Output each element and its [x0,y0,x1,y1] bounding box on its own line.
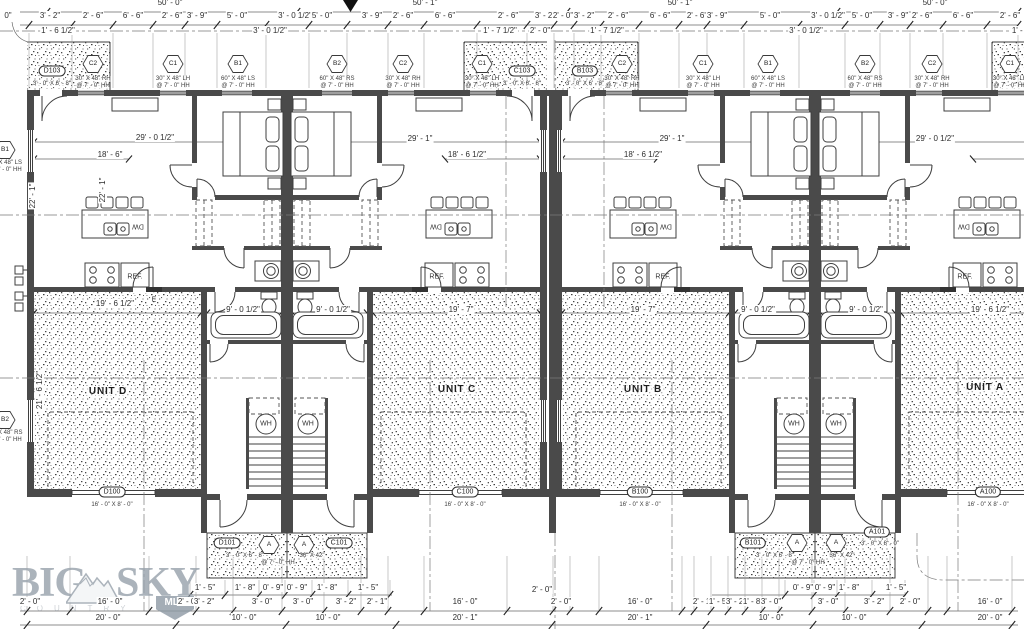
dimension-label-text: 29' - 0 1/2" [915,134,955,143]
unit-name-label-text: UNIT B [622,384,664,395]
dimension-label-text: 3' - 0 1/2" [788,26,824,35]
dimension-label-text: 3' - 2" [193,597,215,606]
size-note-text: 16' - 0" X 8' - 0" [444,502,485,508]
size-note-text: @ 7' - 0" HH [0,167,22,173]
size-note-text: 60" X 48" LS [221,76,255,82]
window-door-tag-text: A [295,537,314,553]
size-note: @ 7' - 0" HH [261,560,294,566]
window-door-tag-text: C1 [694,56,713,72]
dimension-label-text: 3' - 0" [292,597,314,606]
size-note-text: 60" X 48" RS [320,76,355,82]
size-note: 60" X 48" RS [320,76,355,82]
fixture-label: REF. [429,274,444,281]
dimension-label-text: 16' - 0" [627,597,654,606]
dimension-label-text: 3' - 0" [760,597,782,606]
window-door-tag-text: B2 [856,56,875,72]
unit-name-label-text: UNIT C [436,384,478,395]
window-door-tag-text: A [827,535,846,551]
dimension-label-text: 9' - 0 1/2" [315,305,351,314]
dimension-label-text: 1' - 8" [838,583,860,592]
window-door-tag: C2 [83,55,104,73]
dimension-label-text: 1' - 7 1/2" [482,26,518,35]
dimension-label-text: 3' - 9" [706,11,728,20]
dimension-label-text: 2' - 6" [999,11,1021,20]
size-note: 30" X 48" LH [993,76,1024,82]
window-door-tag: C2 [393,55,414,73]
window-door-tag-text: A [260,537,279,553]
dimension-label: 2' - 6" [392,12,414,20]
size-note-text: 60" X 48" LS [0,160,22,166]
dimension-label-text: 2' - 0" [19,597,41,606]
size-note-text: 36" X 42" [830,553,855,559]
size-note: 3' - 0" X 8' - 0" [861,541,899,547]
dimension-label: 0' - 9" [286,584,308,592]
window-door-tag: A [294,536,315,554]
fixture-label-text: WH [302,421,314,428]
window-door-tag: A [259,536,280,554]
size-note: @ 7' - 0" HH [751,83,784,89]
dimension-label: 20' - 0" [95,614,122,622]
dimension-label: 0' - 9" [792,584,814,592]
dimension-label-text: 3' - 0 1/2" [277,11,313,20]
size-note-text: 30" X 48" RH [75,76,110,82]
dimension-label-text: 6' - 6" [434,11,456,20]
dimension-label: 1' - 5" [194,584,216,592]
dimension-label: 5' - 0" [851,12,873,20]
size-note: 60" X 48" LS [751,76,785,82]
dimension-label: 29' - 1" [407,135,434,143]
size-note: 60" X 48" LS [221,76,255,82]
dimension-label: 1' - 8" [838,584,860,592]
size-note-text: 3' - 0" X 6' - 8" [226,553,264,559]
size-note-text: 30" X 48" RH [385,76,420,82]
dimension-label-vertical: 22' - 1" [29,183,37,210]
size-note-text: @ 7' - 0" HH [686,83,719,89]
dimension-label: 2' - 6" [161,12,183,20]
door-tag: D100 [99,487,126,498]
dimension-label-text: 2' - 6" [392,11,414,20]
dimension-label-text: 20' - 1" [627,613,654,622]
dimension-label-text: 50' - 0" [922,0,949,7]
dimension-label: 2' - 6" [82,12,104,20]
size-note-text: 3' - 0" X 6' - 8" [566,81,604,87]
dimension-label: 5' - 0" [226,12,248,20]
dimension-label: 3' - 0 1/2" [788,27,824,35]
dimension-label-text: 6' - 6" [952,11,974,20]
door-tag: A100 [975,487,1001,498]
dimension-label-text: 3' - 9" [361,11,383,20]
dimension-label: 18' - 6" [97,151,124,159]
size-note: @ 7' - 0" HH [605,83,638,89]
dimension-label-text: 10' - 0" [231,613,258,622]
dimension-label-text: 2' - 6" [497,11,519,20]
dimension-label: 10' - 0" [841,614,868,622]
size-note-text: 3' - 0" X 8' - 0" [861,541,899,547]
fixture-label-text: REF. [957,274,972,281]
unit-name-label: UNIT D [87,387,129,397]
dimension-label: 29' - 1" [659,135,686,143]
size-note-text: @ 7' - 0" HH [156,83,189,89]
dimension-label: 3' - 9" [186,12,208,20]
window-door-tag-text: C2 [923,56,942,72]
window-door-tag: B1 [0,141,16,159]
size-note-text: 36" X 42" [300,553,325,559]
size-note: 16' - 0" X 8' - 0" [91,502,132,508]
dimension-label-text: 16' - 0" [977,597,1004,606]
fixture-label-text: REF. [655,274,670,281]
fixture-label: REF. [655,274,670,281]
size-note: 16' - 0" X 8' - 0" [444,502,485,508]
dimension-label: 2' - 0" [19,598,41,606]
fixture-label-text: DW [958,223,970,230]
dimension-label-text: 3' - 0 1/2" [810,11,846,20]
dimension-label: 2' - 0" [531,586,553,594]
size-note-text: 3' - 0" X 6' - 8" [756,553,794,559]
door-tag: B103 [572,66,598,77]
dimension-label-text: 3' - 0 1/2" [252,26,288,35]
dimension-label: 1' - 6" [1011,27,1024,35]
dimension-label-text: 3' - 9" [186,11,208,20]
dimension-label-text: 20' - 1" [452,613,479,622]
door-tag-text: C100 [452,487,479,498]
dimension-label: 1' - 6 1/2" [40,27,76,35]
size-note: @ 7' - 0" HH [915,83,948,89]
size-note: @ 7' - 0" HH [221,83,254,89]
dimension-label: 50' - 0" [922,0,949,7]
size-note: 30" X 48" RH [604,76,639,82]
size-note-text: @ 7' - 0" HH [993,83,1024,89]
size-note: 60" X 48" RS [0,430,22,436]
dimension-label: 3' - 2" [863,598,885,606]
size-note-text: 30" X 48" LH [993,76,1024,82]
size-note: @ 7' - 0" HH [791,560,824,566]
dimension-label-text: 20' - 0" [95,613,122,622]
fixture-label-text: WH [260,421,272,428]
dimension-label-vertical-text: 21' - 6 1/2" [35,370,44,410]
dimension-label-text: 2' - 6" [82,11,104,20]
dimension-label-text: 50' - 1" [667,0,694,7]
dimension-label-text: 16' - 0" [97,597,124,606]
size-note: 3' - 0" X 6' - 8" [756,553,794,559]
dimension-label-text: 6' - 6" [649,11,671,20]
door-tag: A101 [864,527,890,538]
dimension-label: 3' - 0 1/2" [810,12,846,20]
fixture-label: WH [260,421,272,428]
dimension-label-text: 19' - 7" [630,305,657,314]
dimension-label: 3' - 2" [335,598,357,606]
dimension-label-text: 5' - 0" [226,11,248,20]
size-note: 30" X 48" RH [75,76,110,82]
dimension-label-text: 9' - 0 1/2" [848,305,884,314]
fixture-label-text: DW [132,223,144,230]
dimension-label: 6' - 6" [434,12,456,20]
size-note-text: 16' - 0" X 8' - 0" [91,502,132,508]
size-note-text: @ 7' - 0" HH [751,83,784,89]
size-note-text: @ 7' - 0" HH [221,83,254,89]
window-door-tag-text: C1 [164,56,183,72]
dimension-label-text: 9' - 0 1/2" [740,305,776,314]
dimension-label-text: 1' - 6 1/2" [40,26,76,35]
dimension-label: 19' - 7" [630,306,657,314]
size-note-text: @ 7' - 0" HH [791,560,824,566]
dimension-label-text: 1' - 5" [357,583,379,592]
size-note-text: @ 7' - 0" HH [261,560,294,566]
dimension-label: 1' - 5" [885,584,907,592]
size-note: 30" X 48" RH [914,76,949,82]
dimension-label: 9' - 0 1/2" [740,306,776,314]
window-door-tag-text: C1 [1001,56,1020,72]
dimension-label-text: 2' - 6" [161,11,183,20]
dimension-label: 16' - 0" [627,598,654,606]
door-tag: C101 [326,538,353,549]
dimension-label-text: 2' - 1" [366,597,388,606]
dimension-label-text: 1' - 5" [194,583,216,592]
unit-name-label: UNIT B [622,385,664,395]
dimension-label-text: 9' - 0 1/2" [225,305,261,314]
dimension-label: 0' - 9" [262,584,284,592]
fixture-label: DW [660,223,672,230]
window-door-tag: C2 [612,55,633,73]
size-note-text: 30" X 48" LH [156,76,190,82]
dimension-label: 16' - 0" [452,598,479,606]
dimension-label: 3' - 9" [361,12,383,20]
dimension-label: 3' - 0" [817,598,839,606]
size-note-text: @ 7' - 0" HH [605,83,638,89]
dimension-label-text: 18' - 6" [97,150,124,159]
size-note: 3' - 0" X 6' - 8" [503,81,541,87]
door-tag: D103 [39,66,66,77]
dimension-label: 16' - 0" [977,598,1004,606]
size-note: 30" X 48" LH [686,76,720,82]
door-tag: C103 [509,66,536,77]
dimension-label-text: 1' - 5" [885,583,907,592]
dimension-label: 2' - 0" [550,598,572,606]
dimension-label: 6' - 6" [122,12,144,20]
window-door-tag-text: C2 [394,56,413,72]
dimension-label: 10' - 0" [758,614,785,622]
size-note-text: 3' - 0" X 6' - 8" [503,81,541,87]
dimension-label-text: 10' - 0" [841,613,868,622]
size-note-text: @ 7' - 0" HH [320,83,353,89]
fixture-label: WH [302,421,314,428]
size-note-text: @ 7' - 0" HH [76,83,109,89]
size-note: @ 7' - 0" HH [0,167,22,173]
size-note-text: @ 7' - 0" HH [0,437,22,443]
dimension-label: 5' - 0" [759,12,781,20]
window-door-tag: A [826,534,847,552]
dimension-label-text: 18' - 6 1/2" [623,150,663,159]
window-door-tag: C1 [472,55,493,73]
dimension-label: 3' - 0" [251,598,273,606]
window-door-tag-text: B1 [229,56,248,72]
fixture-label-text: DW [430,223,442,230]
dimension-label: 9' - 0 1/2" [225,306,261,314]
dimension-label-text: 3' - 0" [251,597,273,606]
fixture-label: DW [132,223,144,230]
dimension-label-text: 20' - 0" [977,613,1004,622]
dimension-label-text: 5' - 0" [759,11,781,20]
size-note: @ 7' - 0" HH [993,83,1024,89]
dimension-label: 3' - 0 1/2" [252,27,288,35]
dimension-label: 3' - 2" [573,12,595,20]
size-note-text: 60" X 48" RS [0,430,22,436]
size-note: 30" X 48" LH [465,76,499,82]
size-note-text: 3' - 0" X 6' - 8" [33,81,71,87]
dimension-label: 3' - 0" [760,598,782,606]
size-note: @ 7' - 0" HH [848,83,881,89]
size-note: 60" X 48" LS [0,160,22,166]
window-door-tag: C1 [163,55,184,73]
door-tag-text: A100 [975,487,1001,498]
dimension-label: 20' - 1" [627,614,654,622]
door-tag: B101 [740,538,766,549]
door-tag-text: D103 [39,66,66,77]
dimension-label-text: 18' - 6 1/2" [447,150,487,159]
size-note: @ 7' - 0" HH [686,83,719,89]
fixture-label-text: REF. [429,274,444,281]
drawing-sheet: BIG SKY MLS COUNTRY 50' - 0"50' - 1"50' … [0,0,1024,629]
window-door-tag-text: B2 [328,56,347,72]
fixture-label-text: DW [660,223,672,230]
fixture-label-text: E [152,297,157,304]
window-door-tag: B1 [228,55,249,73]
dimension-label-text: 19' - 6 1/2" [970,305,1010,314]
size-note-text: 16' - 0" X 8' - 0" [619,502,660,508]
dimension-label-text: 3' - 2" [573,11,595,20]
size-note: 3' - 0" X 6' - 8" [566,81,604,87]
dimension-label-text: 3' - 2" [335,597,357,606]
window-door-tag: B2 [327,55,348,73]
unit-name-label-text: UNIT A [964,382,1006,393]
fixture-label-text: WH [830,421,842,428]
size-note: 30" X 48" LH [156,76,190,82]
fixture-label-text: WH [788,421,800,428]
dimension-label-text: 2' - 6" [911,11,933,20]
dimension-label: 0" [3,12,12,20]
dimension-label: 9' - 0 1/2" [848,306,884,314]
unit-name-label-text: UNIT D [87,386,129,397]
size-note-text: @ 7' - 0" HH [848,83,881,89]
dimension-label-text: 0' - 9" [262,583,284,592]
dimension-label: 0' - 9" [814,584,836,592]
dimension-label: 18' - 6 1/2" [623,151,663,159]
size-note: @ 7' - 0" HH [0,437,22,443]
dimension-label: 5' - 0" [311,12,333,20]
window-door-tag-text: C2 [84,56,103,72]
dimension-label: 1' - 8" [234,584,256,592]
dimension-label-text: 1' - 7 1/2" [589,26,625,35]
dimension-label: 50' - 1" [412,0,439,7]
size-note: 16' - 0" X 8' - 0" [967,502,1008,508]
unit-name-label: UNIT A [964,383,1006,393]
door-tag: C100 [452,487,479,498]
dimension-label-text: 2' - 0" [529,26,551,35]
door-tag-text: B103 [572,66,598,77]
dimension-label-text: 6' - 6" [122,11,144,20]
window-door-tag: B2 [0,411,16,429]
dimension-label: 2' - 1" [366,598,388,606]
window-door-tag-text: C2 [613,56,632,72]
dimension-label: 2' - 6" [911,12,933,20]
dimension-label-text: 5' - 0" [851,11,873,20]
door-tag-text: C103 [509,66,536,77]
door-tag-text: B101 [740,538,766,549]
dimension-label: 2' - 0" [529,27,551,35]
window-door-tag: C2 [922,55,943,73]
dimension-label-text: 0' - 9" [286,583,308,592]
door-tag-text: A101 [864,527,890,538]
fixture-label-text: REF. [127,274,142,281]
size-note: @ 7' - 0" HH [465,83,498,89]
dimension-label-text: 10' - 0" [315,613,342,622]
size-note-text: @ 7' - 0" HH [386,83,419,89]
dimension-label-text: 1' - 8" [316,583,338,592]
fixture-label: E [152,297,157,304]
window-door-tag: A [787,534,808,552]
dimension-label-text: 29' - 0 1/2" [135,133,175,142]
dimension-label: 3' - 2" [39,12,61,20]
dimension-label-vertical-text: 22' - 1" [28,183,37,210]
dimension-label-text: 3' - 2" [39,11,61,20]
fixture-label: REF. [127,274,142,281]
dimension-label-vertical: 21' - 6 1/2" [36,370,44,410]
dimension-label-text: 29' - 1" [659,134,686,143]
dimension-label: 2' - 6" [497,12,519,20]
dimension-label: 20' - 1" [452,614,479,622]
size-note: @ 7' - 0" HH [320,83,353,89]
dimension-label-text: 10' - 0" [758,613,785,622]
size-note: @ 7' - 0" HH [386,83,419,89]
dimension-label-text: 19' - 7" [448,305,475,314]
size-note: 60" X 48" RS [848,76,883,82]
dimension-label-text: 1' - 8" [234,583,256,592]
annotation-layer: 50' - 0"50' - 1"50' - 1"50' - 0"0"3' - 2… [0,0,1024,629]
dimension-label: 19' - 6 1/2" [95,300,135,308]
window-door-tag-text: B1 [759,56,778,72]
size-note-text: 30" X 48" LH [465,76,499,82]
size-note-text: 60" X 48" RS [848,76,883,82]
dimension-label: 29' - 0 1/2" [915,135,955,143]
dimension-label: 3' - 0 1/2" [277,12,313,20]
size-note: 36" X 42" [300,553,325,559]
dimension-label: 2' - 6" [999,12,1021,20]
dimension-label-text: 50' - 0" [157,0,184,7]
dimension-label-text: 0' - 9" [814,583,836,592]
dimension-label-text: 2' - 0" [550,597,572,606]
fixture-label: DW [958,223,970,230]
dimension-label: 10' - 0" [315,614,342,622]
fixture-label: WH [830,421,842,428]
dimension-label-text: 0' - 9" [792,583,814,592]
size-note-text: @ 7' - 0" HH [915,83,948,89]
size-note-text: 60" X 48" LS [751,76,785,82]
size-note-text: 16' - 0" X 8' - 0" [967,502,1008,508]
fixture-label: REF. [957,274,972,281]
dimension-label: 3' - 9" [887,12,909,20]
dimension-label-text: 2' - 0" [899,597,921,606]
door-tag: B100 [627,487,653,498]
size-note-text: 30" X 48" RH [914,76,949,82]
window-door-tag-text: B2 [0,412,15,428]
dimension-label: 2' - 0" [552,12,574,20]
dimension-label-text: 2' - 0" [531,585,553,594]
dimension-label-text: 29' - 1" [407,134,434,143]
dimension-label: 1' - 8" [316,584,338,592]
dimension-label: 50' - 0" [157,0,184,7]
window-door-tag-text: B1 [0,142,15,158]
dimension-label: 3' - 2" [193,598,215,606]
dimension-label-vertical: 22' - 1" [99,177,107,204]
